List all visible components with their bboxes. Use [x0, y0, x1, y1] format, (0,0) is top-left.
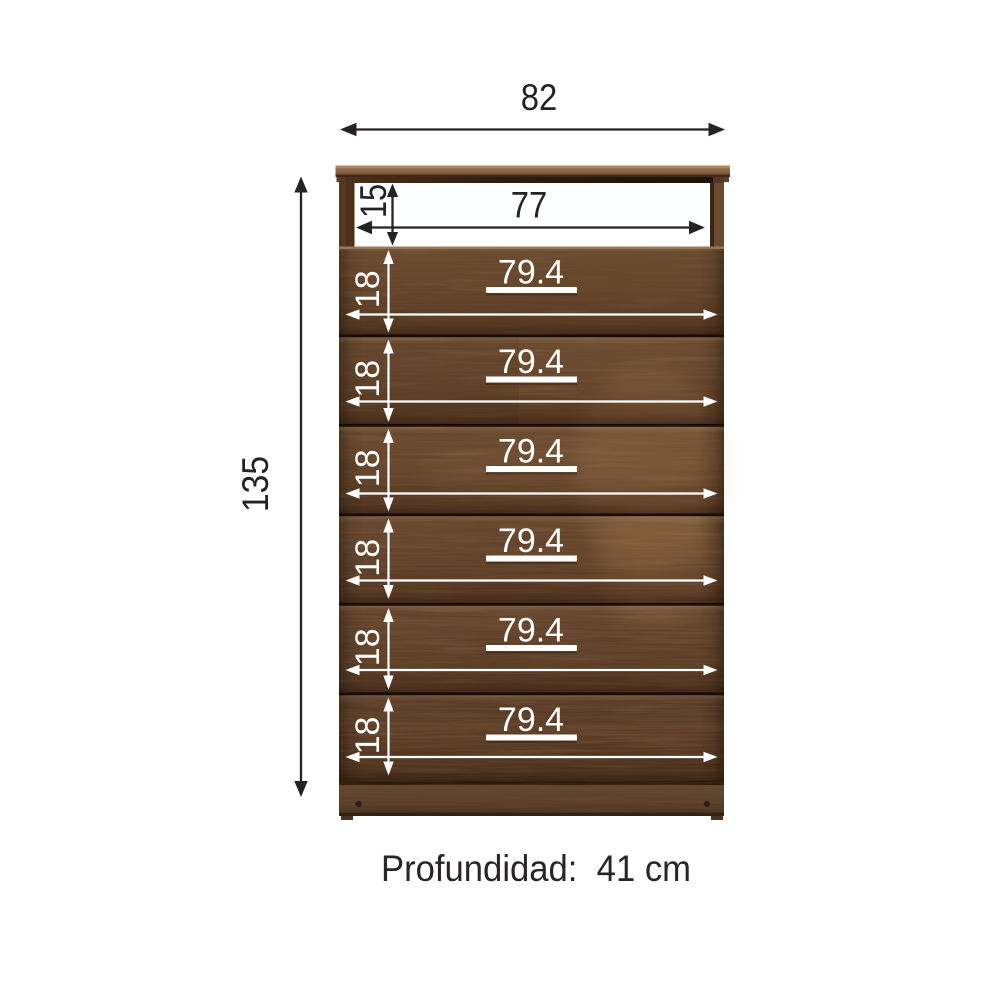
- svg-text:Profundidad: 41 cm: Profundidad: 41 cm: [381, 848, 691, 889]
- svg-text:79.4: 79.4: [498, 433, 564, 471]
- svg-text:18: 18: [349, 539, 387, 577]
- svg-text:79.4: 79.4: [498, 612, 564, 650]
- svg-text:18: 18: [349, 628, 387, 666]
- svg-text:79.4: 79.4: [498, 254, 564, 292]
- svg-text:18: 18: [349, 449, 387, 487]
- svg-text:18: 18: [349, 270, 387, 308]
- svg-text:79.4: 79.4: [498, 343, 564, 381]
- svg-text:82: 82: [521, 77, 558, 118]
- svg-text:15: 15: [353, 184, 394, 218]
- svg-text:18: 18: [349, 717, 387, 755]
- svg-text:79.4: 79.4: [498, 522, 564, 560]
- svg-text:135: 135: [235, 456, 276, 512]
- svg-text:77: 77: [511, 185, 548, 226]
- svg-text:18: 18: [349, 360, 387, 398]
- svg-text:79.4: 79.4: [498, 701, 564, 739]
